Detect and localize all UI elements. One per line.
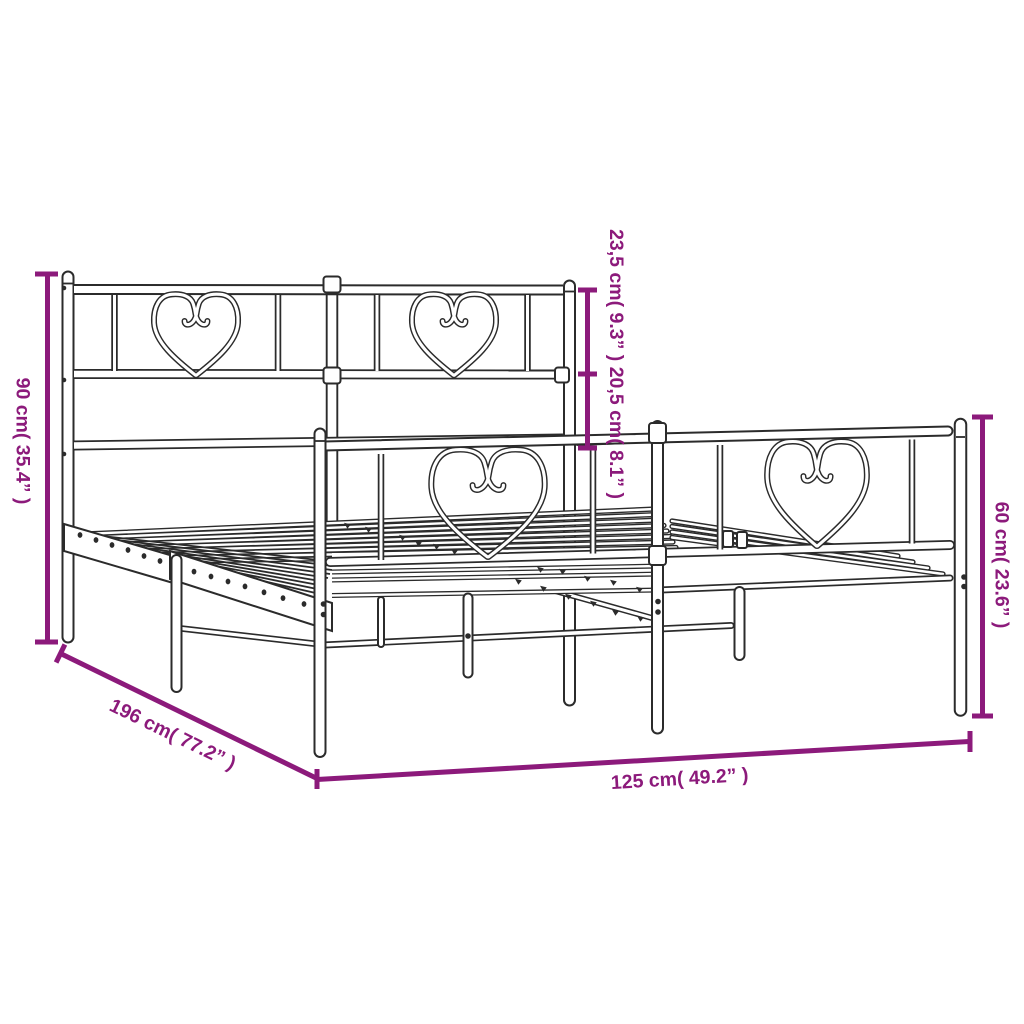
svg-text:23,5 cm( 9.3” ) 20,5 cm( 8.1”: 23,5 cm( 9.3” ) 20,5 cm( 8.1” ): [605, 229, 627, 499]
svg-text:60 cm( 23.6” ): 60 cm( 23.6” ): [991, 502, 1013, 629]
svg-text:90 cm( 35.4” ): 90 cm( 35.4” ): [12, 378, 34, 505]
